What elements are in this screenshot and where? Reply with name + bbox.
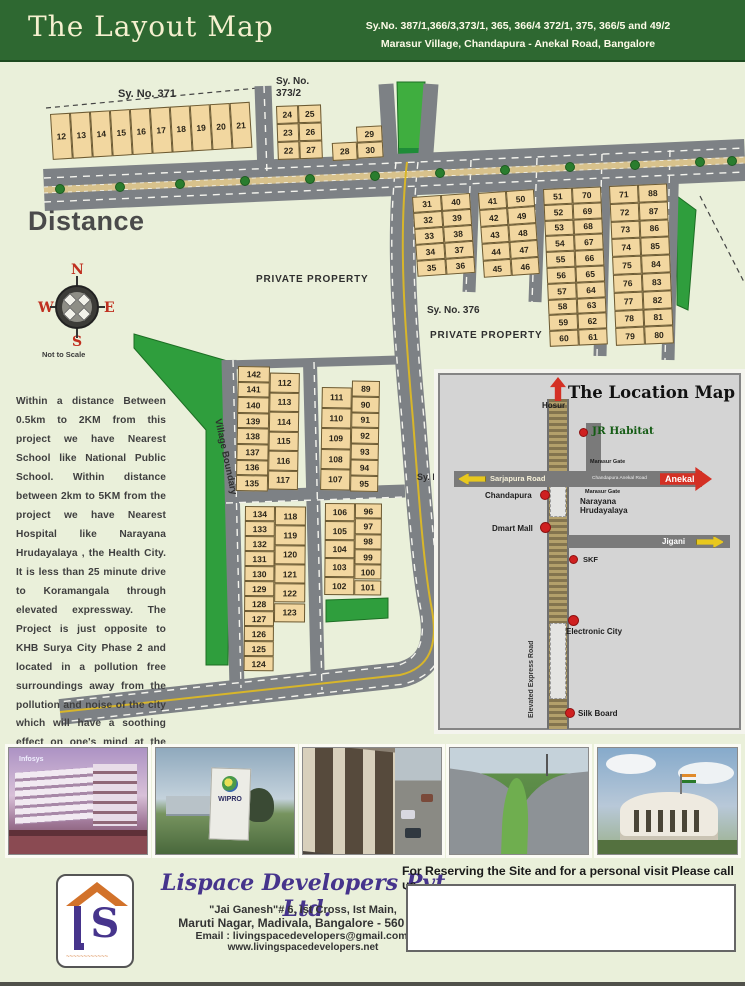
compass-west: W	[38, 300, 54, 316]
jr-habitat-label: JR Habitat	[592, 425, 654, 437]
photo-infosys: Infosys	[8, 747, 148, 855]
sy-no-376: Sy. No. 376	[427, 305, 480, 317]
layout-map: 1213141516171819202124232225262728293031…	[0, 62, 745, 744]
marasur-gate-bottom-label: Marasur Gate	[585, 489, 620, 495]
skf-dot	[569, 555, 578, 564]
lispace-logo: S ~​~​~​~​~​~​~​~​~​~​~​~	[56, 874, 134, 968]
narayana-label: Narayana Hrudayalaya	[580, 497, 628, 515]
chandapura-dot	[540, 490, 550, 500]
silk-board-label: Silk Board	[578, 709, 618, 718]
compass-east: E	[104, 300, 115, 316]
skf-label: SKF	[583, 555, 598, 564]
elevated-section-2	[550, 623, 566, 699]
logo-tagline: ~​~​~​~​~​~​~​~​~​~​~​~	[66, 954, 128, 962]
private-property-1: PRIVATE PROPERTY	[256, 274, 368, 286]
email-address[interactable]: livingspacedevelopers@gmail.com,	[230, 930, 411, 942]
sy-partial: Sy. N	[417, 472, 439, 482]
distance-heading: Distance	[28, 206, 145, 237]
compass-rose: N W E S Not to Scale	[38, 262, 114, 362]
survey-line-1: Sy.No. 387/1,366/3,373/1, 365, 366/4 372…	[303, 18, 733, 36]
distance-description: Within a distance Between 0.5km to 2KM f…	[16, 393, 166, 772]
chandapura-label: Chandapura	[485, 491, 532, 500]
infosys-sign-label: Infosys	[19, 756, 44, 763]
marasur-gate-top-label: Marasur Gate	[590, 459, 625, 465]
silk-board-dot	[565, 708, 575, 718]
elevated-express-road-label: Elevated Express Road	[528, 613, 535, 718]
electronic-city-label: Electronic City	[566, 627, 622, 636]
page-title: The Layout Map	[28, 10, 274, 43]
flag-icon	[682, 774, 696, 783]
header-banner: The Layout Map Sy.No. 387/1,366/3,373/1,…	[0, 0, 745, 62]
chandapura-anekal-road-label: Chandapura Anekal Road	[592, 476, 647, 481]
anekal-label: Anekal	[665, 474, 695, 484]
photo-underpass	[302, 747, 442, 855]
brochure-page: The Layout Map Sy.No. 387/1,366/3,373/1,…	[0, 0, 745, 986]
private-property-2: PRIVATE PROPERTY	[430, 330, 542, 342]
phone-number-box	[406, 884, 736, 952]
dmart-dot	[540, 522, 551, 533]
compass-dial	[55, 285, 99, 329]
sy-no-373-2: Sy. No. 373/2	[276, 76, 309, 99]
village-boundary: Village Boundary	[211, 418, 238, 496]
sy-no-371: Sy. No. 371	[118, 88, 176, 101]
survey-numbers: Sy.No. 387/1,366/3,373/1, 365, 366/4 372…	[303, 18, 733, 54]
survey-line-2: Marasur Village, Chandapura - Anekal Roa…	[303, 36, 733, 54]
footer: S ~​~​~​~​~​~​~​~​~​~​~​~ Lispace Develo…	[0, 858, 745, 982]
not-to-scale-note: Not to Scale	[42, 350, 114, 359]
electronic-city-dot	[568, 615, 579, 626]
logo-letter: S	[82, 900, 128, 947]
dmart-label: Dmart Mall	[492, 524, 533, 533]
location-map-inset: The Location Map Hosur JR Habitat Sarjap…	[438, 373, 741, 730]
photo-round-building	[597, 747, 738, 855]
photo-expressway	[449, 747, 589, 855]
photo-strip: Infosys WIPRO	[0, 744, 745, 858]
jr-habitat-dot	[579, 428, 588, 437]
wipro-sign-label: WIPRO	[214, 796, 246, 803]
jigani-label: Jigani	[662, 537, 685, 546]
hosur-label: Hosur	[542, 401, 565, 410]
sarjapura-road-label: Sarjapura Road	[490, 474, 545, 483]
email-label: Email :	[195, 930, 229, 942]
photo-wipro: WIPRO	[155, 747, 295, 855]
location-map-title: The Location Map	[568, 383, 735, 402]
hosur-arrow-icon	[550, 377, 566, 401]
